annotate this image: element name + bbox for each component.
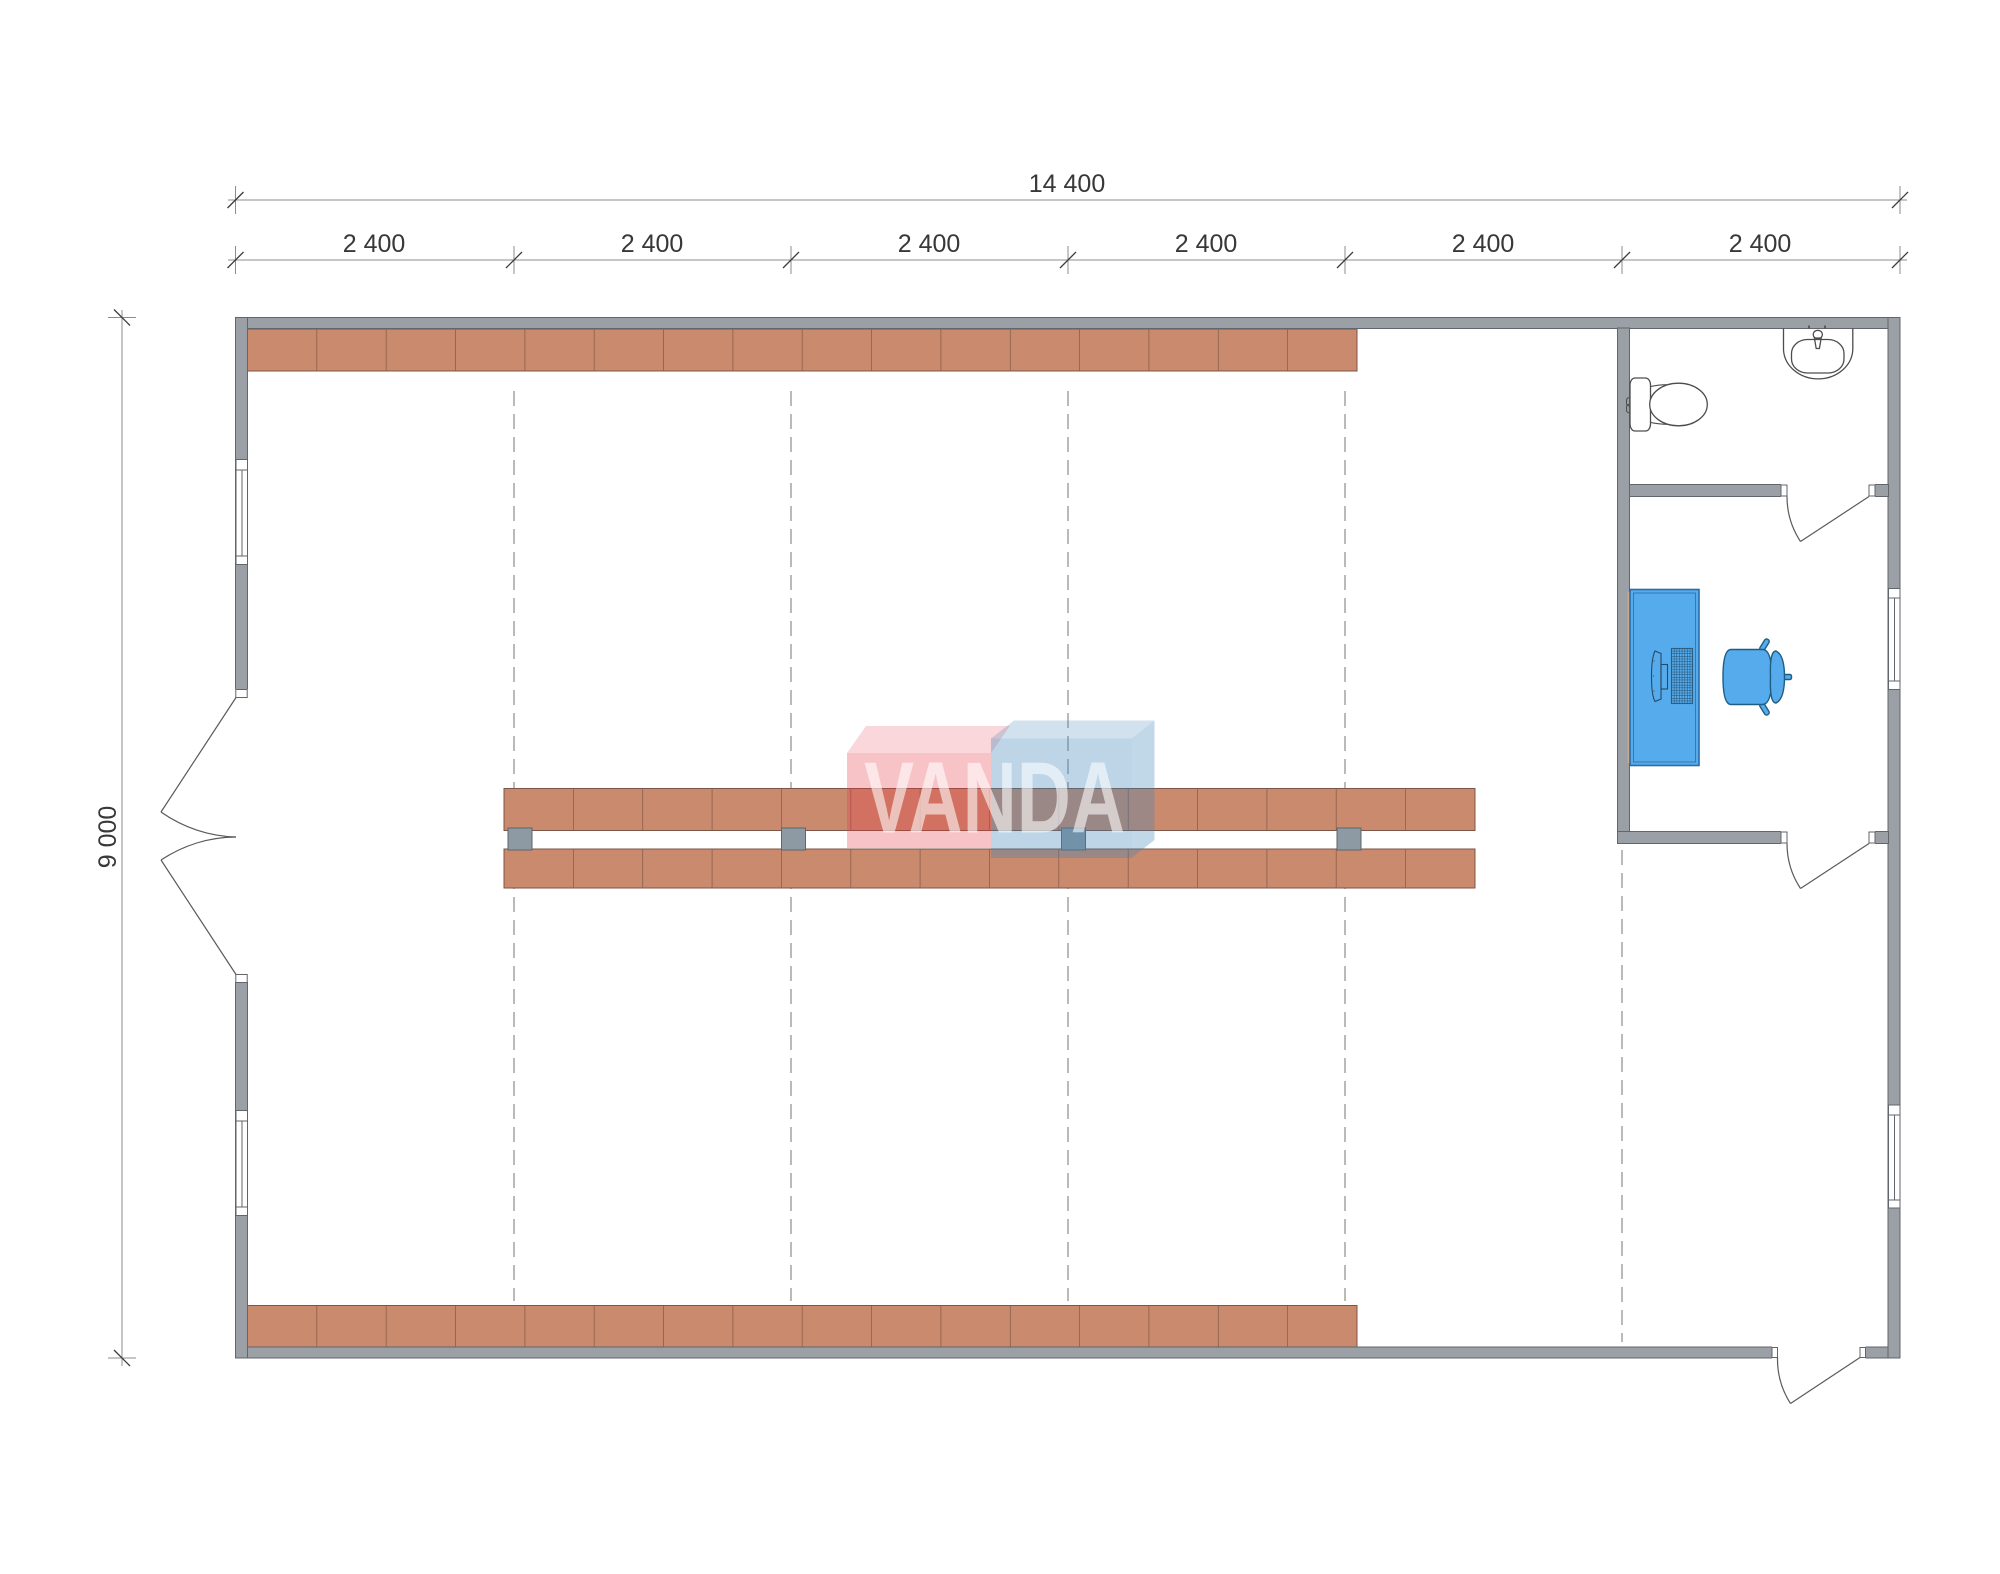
svg-text:2 400: 2 400 <box>1452 230 1515 258</box>
svg-text:2 400: 2 400 <box>343 230 406 258</box>
svg-text:2 400: 2 400 <box>1729 230 1792 258</box>
svg-text:2 400: 2 400 <box>621 230 684 258</box>
svg-text:2 400: 2 400 <box>1175 230 1238 258</box>
svg-text:2 400: 2 400 <box>898 230 961 258</box>
svg-text:9 000: 9 000 <box>94 806 122 869</box>
svg-text:VANDA: VANDA <box>864 743 1125 855</box>
svg-text:14 400: 14 400 <box>1029 170 1105 198</box>
